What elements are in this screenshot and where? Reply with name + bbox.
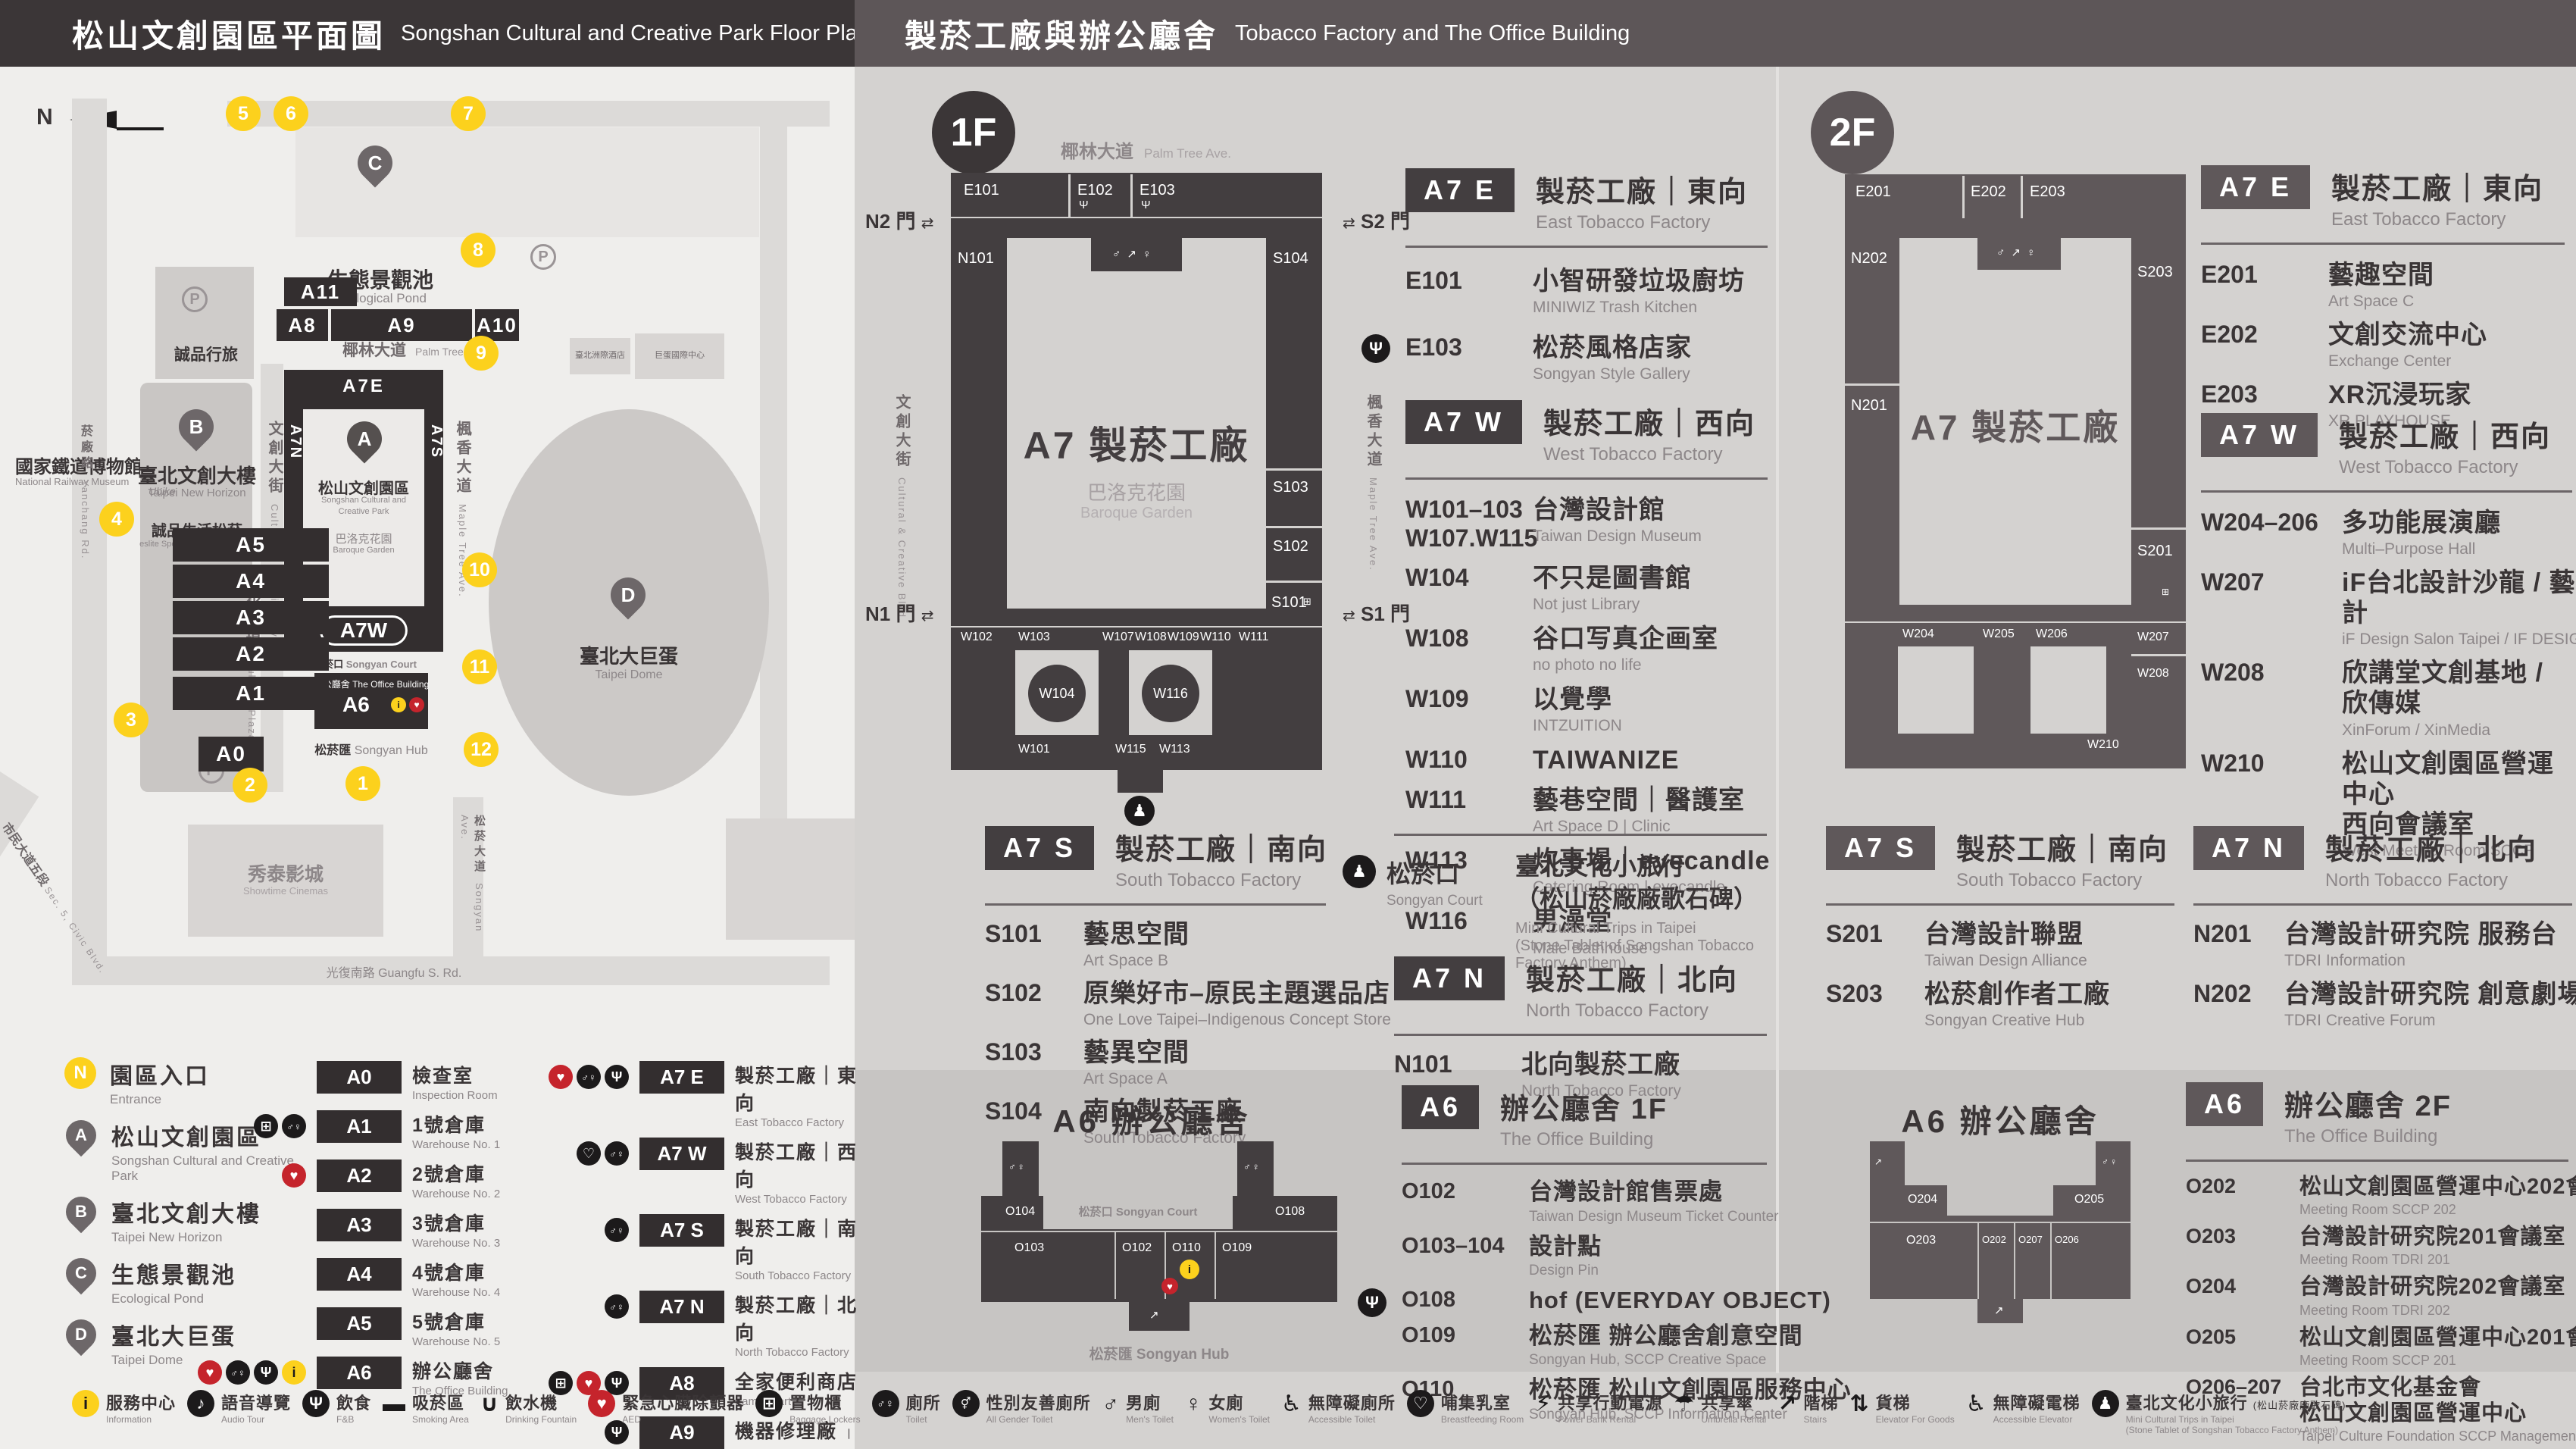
lockers-icon: ⊞ [2162, 587, 2171, 597]
lockers-icon: ⊞ [755, 1390, 783, 1417]
mens-toilet-icon: ♂ [1102, 1391, 1120, 1416]
food-icon: Ψ [254, 1360, 278, 1385]
map-building-a4: A4 [173, 565, 329, 598]
room-label: W113 [1159, 743, 1190, 756]
accessible-elevator-icon: ♿ [1966, 1391, 1987, 1416]
legend-building-row: ♂♀ A7 S 製菸工廠｜南向 South Tobacco Factory [550, 1214, 861, 1282]
room-label: O206 [2055, 1234, 2079, 1245]
building-code-chip: A3 [317, 1209, 402, 1241]
aed-icon: ♥ [1161, 1278, 1178, 1294]
directory-row: O102 台灣設計館售票處Taiwan Design Museum Ticket… [1402, 1178, 1767, 1225]
breastfeeding-icon: ♡ [577, 1141, 601, 1166]
room-label: O109 [1222, 1241, 1252, 1255]
legend-item: ⊞ 置物櫃 Baggage Lockers [755, 1390, 860, 1425]
room-label: S103 [1273, 479, 1308, 496]
a6-court-label: 松菸口 Songyan Court [1079, 1203, 1198, 1219]
womens-toilet-icon: ♀ [1185, 1391, 1202, 1416]
directory-row: O205 松山文創園區營運中心201會議室Meeting Room SCCP 2… [2186, 1325, 2568, 1369]
directory-row: Ψ E103 松菸風格店家Songyan Style Gallery [1405, 333, 1768, 383]
f1-garden-en: Baroque Garden [1080, 505, 1193, 522]
card-a7s-2f: A7 S 製菸工廠｜南向South Tobacco Factory S201 台… [1826, 826, 2174, 1039]
umbrella-icon: ☂ [1674, 1391, 1694, 1416]
page-title-left-en: Songshan Cultural and Creative Park Floo… [401, 21, 870, 46]
legend-item: ♿ 無障礙廁所 Accessible Toilet [1281, 1390, 1396, 1425]
f2-center-label: A7 製菸工廠 [1911, 400, 2121, 450]
toilet-icon: ♂♀ [1008, 1161, 1027, 1172]
map-building-a1: A1 [173, 677, 329, 710]
toilet-icon: ♂♀ [605, 1294, 629, 1319]
aed-icon: ♥ [409, 697, 424, 712]
page-title-right-en: Tobacco Factory and The Office Building [1235, 21, 1630, 46]
room-label: N101 [958, 250, 994, 268]
parking-icon: P [182, 286, 208, 312]
dome-label-zh: 臺北大巨蛋 [580, 641, 678, 669]
cinema-label-en: Showtime Cinemas [243, 885, 328, 897]
eslite-hotel-label: 誠品行旅 [174, 343, 238, 365]
entrance-4: 4 [99, 502, 134, 537]
legend-item: ♿ 無障礙電梯 Accessible Elevator [1966, 1390, 2080, 1425]
room-label: W110 [1200, 631, 1231, 644]
legend-item: ∪ 飲水機 Drinking Fountain [480, 1390, 577, 1425]
map-a7w-label: A7W [320, 615, 408, 646]
food-icon: Ψ [605, 1065, 629, 1089]
room-label: S102 [1273, 538, 1308, 556]
legend-item: ♥ 緊急心臟除顫器 AED [588, 1390, 744, 1425]
building-code-chip: A5 [317, 1307, 402, 1340]
pin-a: A [339, 414, 389, 463]
room-label: S201 [2137, 543, 2173, 560]
floor-badge-2f: 2F [1811, 91, 1894, 174]
room-label: W111 [1239, 631, 1268, 644]
food-icon: Ψ [1358, 1288, 1386, 1317]
room-label: E202 [1971, 183, 2006, 201]
entrance-10: 10 [462, 552, 497, 587]
mini-trips-icon: ♟ [1124, 796, 1155, 826]
legend-item: ♀ 女廁 Women's Toilet [1185, 1390, 1270, 1425]
toilet-icon: ♂♀ [605, 1218, 629, 1242]
far-eastern-block [726, 818, 855, 940]
toilet-icon: ♂♀ [605, 1141, 629, 1166]
room-label: W210 [2087, 738, 2119, 752]
map-a7n-label: A7N [286, 424, 304, 459]
room-label: W207 [2137, 631, 2169, 644]
f1-center-label: A7 製菸工廠 [1024, 415, 1250, 470]
cinema-label-zh: 秀泰影城 [248, 859, 324, 887]
floor-badge-1f: 1F [932, 91, 1015, 174]
toilet-icon: ♂♀ [872, 1390, 899, 1417]
toilet-icon: ♂♀ [282, 1114, 306, 1138]
legend-building-row: ♡♂♀ A7 W 製菸工廠｜西向 West Tobacco Factory [550, 1138, 861, 1206]
directory-row: O204 台灣設計研究院202會議室Meeting Room TDRI 202 [2186, 1274, 2568, 1318]
gate-s1: ⇄ S1 門 [1343, 599, 1410, 627]
pin-icon: B [60, 1191, 103, 1234]
legend-item: ♂♀ 廁所 Toilet [872, 1390, 941, 1425]
toilet-icon: ♂ ↗ ♀ [1996, 246, 2037, 259]
map-building-a5: A5 [173, 528, 329, 562]
directory-row: O203 台灣設計研究院201會議室Meeting Room TDRI 201 [2186, 1224, 2568, 1268]
room-label: O103 [1014, 1241, 1044, 1255]
pin-icon: N [64, 1057, 96, 1089]
building-code-chip: A1 [317, 1110, 402, 1143]
section-chip: A6 [2186, 1082, 2263, 1126]
legend-item: ♪ 語音導覽 Audio Tour [187, 1390, 291, 1425]
legend-building-row: A4 4號倉庫 Warehouse No. 4 [227, 1258, 553, 1299]
entrance-3: 3 [114, 703, 148, 737]
food-icon: Ψ [302, 1390, 330, 1417]
map-park-en1: Songshan Cultural and [321, 496, 406, 505]
legend-item: ▬ 吸菸區 Smoking Area [383, 1390, 469, 1425]
information-icon: i [282, 1360, 306, 1385]
toilet-icon: ♂♀ [577, 1065, 601, 1089]
songyan-court-note-left: ♟ 松菸口 Songyan Court [1343, 855, 1483, 909]
room-label: W115 [1115, 743, 1146, 756]
section-chip: A7 W [1405, 400, 1522, 444]
parking-icon: P [530, 244, 556, 270]
room-label: W101 [1018, 743, 1050, 756]
pin-d: D [603, 570, 652, 619]
legend-item: ↗ 階梯 Stairs [1777, 1390, 1838, 1425]
directory-row: S102 原樂好市–原民主題選品店One Love Taipei–Indigen… [985, 978, 1326, 1029]
goods-elevator-icon: ⇅ [1850, 1391, 1869, 1416]
directory-row: O103–104 設計點Design Pin [1402, 1233, 1767, 1280]
room-label: O204 [1908, 1193, 1937, 1206]
entrance-2: 2 [233, 768, 267, 803]
stairs-icon: ↗ [1874, 1156, 1884, 1167]
room-label: E101 [964, 182, 999, 199]
section-chip: A7 S [985, 826, 1094, 870]
page-title-right-zh: 製菸工廠與辦公廳舍 [905, 11, 1218, 57]
compass-arrow-tail [117, 127, 164, 130]
map-building-a8: A8 [277, 309, 328, 341]
directory-row: N202 台灣設計研究院 創意劇場TDRI Creative Forum [2193, 979, 2572, 1030]
a6-hub-label: 松菸匯 Songyan Hub [1089, 1343, 1230, 1363]
room-label: E103 [1140, 182, 1175, 199]
ecological-pond [295, 127, 759, 237]
directory-row: O109 松菸匯 辦公廳舍創意空間Songyan Hub, SCCP Creat… [1402, 1322, 1767, 1369]
map-a7s-label: A7S [427, 424, 445, 458]
building-code-chip: A0 [317, 1061, 402, 1094]
road-right [760, 127, 787, 824]
entrance-7: 7 [451, 96, 486, 131]
directory-row: W110 TAIWANIZE [1405, 745, 1768, 775]
street-songyan-ave: 松菸大道Songyan Ave. [458, 815, 487, 959]
toilet-icon: ♂♀ [1243, 1161, 1261, 1172]
audio-tour-icon: ♪ [187, 1390, 214, 1417]
map-office-label: 辦公廳舍 The Office Building [314, 678, 430, 690]
entrance-11: 11 [462, 649, 497, 684]
legend-item: ♂ 男廁 Men's Toilet [1102, 1390, 1174, 1425]
building-code-chip: A6 [317, 1357, 402, 1389]
lockers-icon: ⊞ [1303, 596, 1313, 608]
drinking-fountain-icon: ∪ [480, 1391, 499, 1416]
room-label: N201 [1851, 397, 1887, 415]
gate-n1: N1 門 ⇄ [865, 599, 933, 627]
legend-building-row: ♂♀ A7 N 製菸工廠｜北向 North Tobacco Factory [550, 1291, 861, 1359]
map-building-a9: A9 [331, 309, 472, 341]
a6-1f-plan: ♂♀ ♂♀ 松菸口 Songyan Court O104 O108 O103 O… [981, 1141, 1337, 1354]
information-icon: i [1180, 1260, 1199, 1279]
room-label: W208 [2137, 667, 2169, 681]
building-code-chip: A7 E [639, 1061, 724, 1094]
section-chip: A7 S [1826, 826, 1935, 870]
building-code-chip: A7 S [639, 1214, 724, 1247]
directory-row: E101 小智研發垃圾廚坊MINIWIZ Trash Kitchen [1405, 266, 1768, 317]
entrance-12: 12 [464, 732, 499, 767]
legend-item: ⇅ 貨梯 Elevator For Goods [1850, 1390, 1955, 1425]
footer-legend: i 服務中心 Information ♪ 語音導覽 Audio Tour Ψ 飲… [72, 1390, 2565, 1435]
directory-row: W204–206 多功能展演廳Multi–Purpose Hall [2201, 508, 2572, 559]
directory-row: O202 松山文創園區營運中心202會議室Meeting Room SCCP 2… [2186, 1174, 2568, 1218]
stairs-icon: ↗ [1149, 1308, 1161, 1322]
food-icon: Ψ [1079, 199, 1090, 211]
room-label: W108 [1135, 631, 1167, 644]
pin-icon: C [60, 1252, 103, 1295]
toilet-icon: ♂♀ [2102, 1156, 2118, 1167]
room-label: W107 [1102, 631, 1134, 644]
directory-row: Ψ O108 hof (EVERYDAY OBJECT) [1402, 1287, 1767, 1315]
stairs-icon: ↗ [1777, 1391, 1796, 1416]
pin-b: B [171, 402, 220, 451]
card-a7w-2f: A7 W 製菸工廠｜西向West Tobacco Factory W204–20… [2201, 413, 2572, 869]
directory-row: S201 台灣設計聯盟Taiwan Design Alliance [1826, 919, 2174, 970]
breastfeeding-icon: ♡ [1407, 1390, 1434, 1417]
smoking-area-icon: ▬ [383, 1391, 405, 1416]
directory-row: W208 欣講堂文創基地 / 欣傳媒XinForum / XinMedia [2201, 658, 2572, 739]
card-a7e-1f: A7 E 製菸工廠｜東向East Tobacco Factory E101 小智… [1405, 168, 1768, 399]
map-building-a2: A2 [173, 637, 329, 671]
room-label: O104 [1005, 1205, 1035, 1219]
section-chip: A7 N [1394, 956, 1505, 1000]
directory-row: S103 藝異空間Art Space A [985, 1037, 1326, 1088]
legend-item: ⚥ 性別友善廁所 All Gender Toilet [952, 1390, 1091, 1425]
mini-trips-icon: ♟ [1343, 855, 1376, 888]
lockers-icon: ⊞ [254, 1114, 278, 1138]
room-label: W206 [2036, 627, 2068, 641]
a6-2f-plan: ↗ ♂♀ O204 O205 O203 O202 O207 O206 ↗ [1864, 1141, 2137, 1331]
directory-row: E201 藝趣空間Art Space C [2201, 260, 2565, 311]
f1-garden-zh: 巴洛克花園 [1087, 477, 1186, 505]
building-code-chip: A2 [317, 1160, 402, 1192]
room-label: E201 [1855, 183, 1891, 201]
room-label: N202 [1851, 250, 1887, 268]
directory-row: E202 文創交流中心Exchange Center [2201, 320, 2565, 371]
legend-item: ☂ 共享傘 Umbrella Rental [1674, 1390, 1766, 1425]
street-guangfu: 光復南路 Guangfu S. Rd. [327, 962, 462, 981]
room-label: W204 [1902, 627, 1934, 641]
directory-row: N201 台灣設計研究院 服務台TDRI Information [2193, 919, 2572, 970]
map-building-a3: A3 [173, 601, 329, 634]
legend-building-row: ♥ A2 2號倉庫 Warehouse No. 2 [227, 1160, 553, 1200]
legend-item: i 服務中心 Information [72, 1390, 176, 1425]
directory-row: W109 以覺學INTZUITION [1405, 684, 1768, 735]
building-code-chip: A7 N [639, 1291, 724, 1323]
aed-icon: ♥ [198, 1360, 222, 1385]
entrance-5: 5 [226, 96, 261, 131]
road-civic-blvd [0, 762, 39, 1153]
entrance-6: 6 [274, 96, 308, 131]
directory-row: W111 藝巷空間｜醫護室Art Space D | Clinic [1405, 785, 1768, 836]
section-chip: A7 E [2201, 165, 2310, 209]
f1-street-left: 文創大街Cultural & Creative Blvd. [891, 394, 913, 788]
gate-n2: N2 門 ⇄ [865, 206, 933, 234]
directory-row: S203 松菸創作者工廠Songyan Creative Hub [1826, 979, 2174, 1030]
map-hub-label: 松菸匯 Songyan Hub [314, 740, 427, 758]
panel-divider [1776, 67, 1779, 1373]
information-icon: i [391, 697, 406, 712]
power-bank-icon: ⚡ [1535, 1391, 1551, 1416]
directory-row: W104 不只是圖書館Not just Library [1405, 563, 1768, 614]
section-chip: A7 N [2193, 826, 2304, 870]
toilet-icon: ♂ ↗ ♀ [1112, 247, 1152, 261]
map-a6-label: A6 [342, 693, 370, 717]
songyan-court-note [1394, 834, 1767, 836]
page-title-left-zh: 松山文創園區平面圖 [72, 11, 386, 57]
gate-s2: ⇄ S2 門 [1343, 206, 1410, 234]
room-label: E102 [1077, 182, 1113, 199]
toilet-icon: ♂♀ [226, 1360, 250, 1385]
room-w104: W104 [1028, 665, 1086, 722]
section-chip: A6 [1402, 1085, 1479, 1129]
songyan-court-note-text: 臺北文化小旅行 （松山菸廠廠歌石碑） Mini Cultural Trips i… [1515, 850, 1773, 972]
legend-building-row: ♥♂♀Ψ A7 E 製菸工廠｜東向 East Tobacco Factory [550, 1061, 861, 1129]
f1-street-palm: 椰林大道 Palm Tree Ave. [1061, 136, 1231, 163]
map-baroque-en: Baroque Garden [333, 546, 394, 555]
food-icon: Ψ [1361, 334, 1390, 363]
directory-row: W108 谷口写真企画室no photo no life [1405, 624, 1768, 674]
ubike-label: Ubike [148, 485, 176, 497]
room-label: E203 [2030, 183, 2065, 201]
aed-icon: ♥ [588, 1390, 615, 1417]
information-icon: i [72, 1390, 99, 1417]
entrance-9: 9 [464, 336, 499, 371]
pin-c: C [350, 138, 399, 187]
icc-hotel-label: 臺北洲際酒店 [575, 349, 625, 361]
room-label: O110 [1172, 1241, 1201, 1255]
room-label: O207 [2018, 1234, 2043, 1245]
room-label: S203 [2137, 264, 2173, 281]
map-park-zh: 松山文創園區 [318, 476, 409, 498]
card-a6-1f: A6 辦公廳舍 1FThe Office Building O102 台灣設計館… [1402, 1085, 1767, 1431]
map-baroque-zh: 巴洛克花園 [335, 530, 392, 546]
entrance-8: 8 [461, 233, 496, 268]
legend-building-row: ⊞♂♀ A1 1號倉庫 Warehouse No. 1 [227, 1110, 553, 1151]
legend-building-row: A3 3號倉庫 Warehouse No. 3 [227, 1209, 553, 1250]
railway-museum-en: National Railway Museum [15, 476, 129, 487]
compass-label: N [36, 105, 53, 130]
food-icon: Ψ [1141, 199, 1152, 211]
f1-street-right: 楓香大道Maple Tree Ave. [1362, 394, 1384, 788]
room-label: W102 [961, 631, 993, 644]
directory-row: W207 iF台北設計沙龍 / 藝符設計iF Design Salon Taip… [2201, 568, 2572, 649]
room-label: O202 [1982, 1234, 2006, 1245]
map-building-a0: A0 [199, 737, 264, 771]
room-label: W109 [1168, 631, 1199, 644]
room-label: O102 [1122, 1241, 1152, 1255]
aed-icon: ♥ [549, 1065, 573, 1089]
card-a7e-2f: A7 E 製菸工廠｜東向East Tobacco Factory E201 藝趣… [2201, 165, 2565, 440]
legend-item: ♟ 臺北文化小旅行 (松山菸廠廠歌石碑) Mini Cultural Trips… [2092, 1390, 2346, 1435]
road-top [227, 101, 830, 127]
map-building-a11: A11 [284, 277, 357, 306]
legend-item: ♡ 哺集乳室 Breastfeeding Room [1407, 1390, 1524, 1425]
entrance-1: 1 [345, 766, 380, 801]
building-code-chip: A7 W [639, 1138, 724, 1170]
dome-label-en: Taipei Dome [596, 668, 663, 682]
directory-row: W101–103W107.W115 台灣設計館Taiwan Design Mus… [1405, 495, 1768, 553]
a6-2f-title: A6 辦公廳舍 [1901, 1096, 2099, 1142]
street-yanchang: 菸廠路Yanchang Rd. [76, 424, 94, 652]
legend-building-row: A5 5號倉庫 Warehouse No. 5 [227, 1307, 553, 1348]
section-chip: A7 E [1405, 168, 1515, 212]
room-label: W205 [1983, 627, 2015, 641]
directory-row: S101 藝思空間Art Space B [985, 919, 1326, 970]
aed-icon: ♥ [282, 1163, 306, 1188]
accessible-toilet-icon: ♿ [1281, 1391, 1302, 1416]
card-a7n-2f: A7 N 製菸工廠｜北向North Tobacco Factory N201 台… [2193, 826, 2572, 1039]
header-left: 松山文創園區平面圖 Songshan Cultural and Creative… [0, 0, 855, 67]
map-park-en2: Creative Park [339, 507, 389, 516]
a6-1f-title: A6 辦公廳舍 [1052, 1096, 1250, 1142]
header-right: 製菸工廠與辦公廳舍 Tobacco Factory and The Office… [855, 0, 2576, 67]
pin-icon: A [60, 1114, 103, 1157]
icc-center-label: 巨蛋國際中心 [655, 349, 705, 361]
legend-item: ⚡ 共享行動電源 Power Bank Rental [1535, 1390, 1662, 1425]
room-w116: W116 [1142, 665, 1199, 722]
section-chip: A7 W [2201, 413, 2318, 457]
room-label: S104 [1273, 250, 1308, 268]
building-code-chip: A4 [317, 1258, 402, 1291]
all-gender-toilet-icon: ⚥ [952, 1390, 980, 1417]
map-court-label: 松菸口 Songyan Court [314, 656, 417, 671]
room-label: O205 [2074, 1193, 2104, 1206]
room-label: O108 [1275, 1205, 1305, 1219]
room-label: O203 [1906, 1234, 1936, 1247]
f1-plan: E101 E102 E103 Ψ Ψ N101 S104 S103 S102 S… [939, 165, 1333, 809]
room-label: W103 [1018, 631, 1050, 644]
floor-plan-poster: 松山文創園區平面圖 Songshan Cultural and Creative… [0, 0, 2576, 1449]
stairs-icon: ↗ [1994, 1303, 2005, 1317]
map-a6-icons: i ♥ [391, 697, 424, 712]
mini-trips-icon: ♟ [2092, 1390, 2119, 1417]
legend-item: Ψ 飲食 F&B [302, 1390, 371, 1425]
map-a7e-label: A7E [342, 376, 385, 397]
f2-plan: E201 E202 E203 N202 N201 S203 S201 ⊞ ♂ ↗… [1837, 165, 2193, 779]
legend-building-row: A0 檢查室 Inspection Room [227, 1061, 553, 1102]
pin-icon: D [60, 1313, 103, 1357]
legend-buildings-1: A0 檢查室 Inspection Room ⊞♂♀ A1 1號倉庫 Wareh… [227, 1061, 553, 1406]
